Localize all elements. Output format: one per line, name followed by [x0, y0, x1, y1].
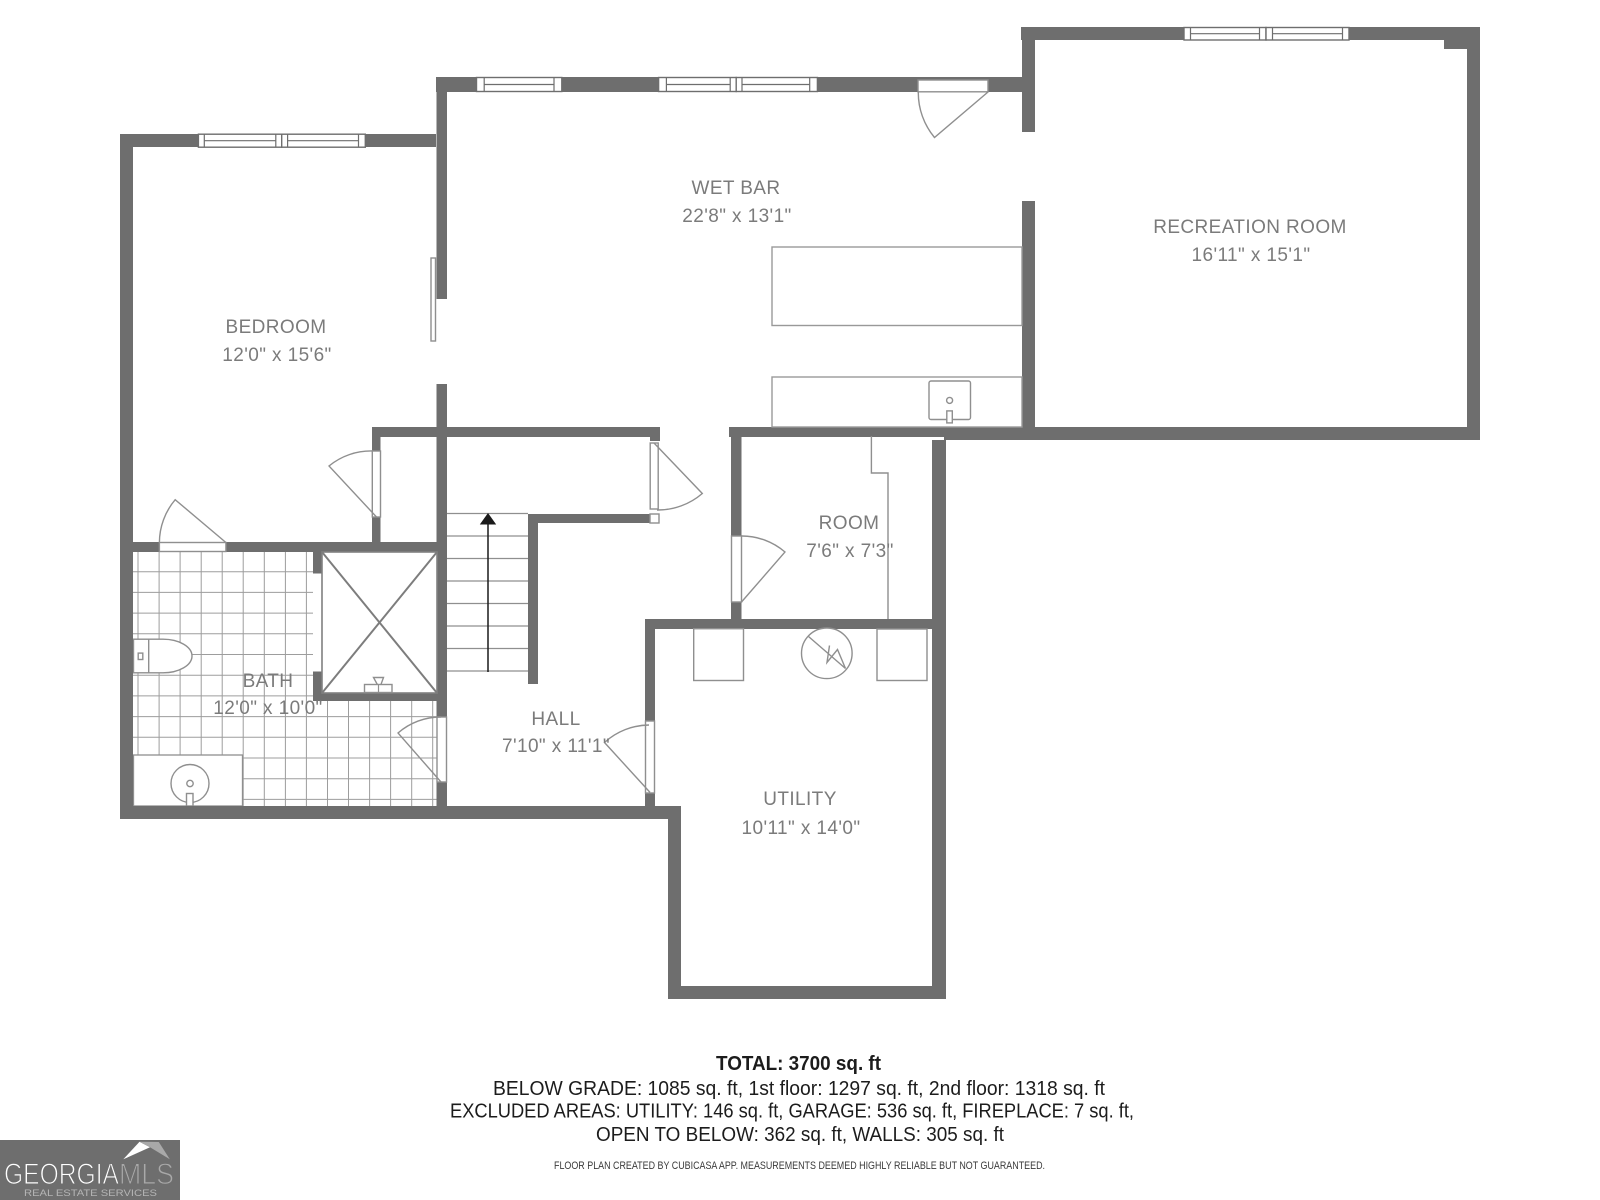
- svg-text:HALL: HALL: [531, 709, 580, 730]
- svg-text:BELOW GRADE: 1085 sq. ft, 1st: BELOW GRADE: 1085 sq. ft, 1st floor: 129…: [493, 1078, 1105, 1100]
- svg-text:TOTAL: 3700 sq. ft: TOTAL: 3700 sq. ft: [716, 1053, 881, 1075]
- svg-text:EXCLUDED AREAS: UTILITY: 146 s: EXCLUDED AREAS: UTILITY: 146 sq. ft, GAR…: [450, 1101, 1134, 1123]
- svg-text:FLOOR PLAN CREATED BY CUBICASA: FLOOR PLAN CREATED BY CUBICASA APP. MEAS…: [554, 1160, 1045, 1172]
- svg-text:16'11" x 15'1": 16'11" x 15'1": [1192, 245, 1311, 266]
- svg-text:12'0" x 10'0": 12'0" x 10'0": [213, 698, 322, 719]
- svg-text:7'6" x 7'3": 7'6" x 7'3": [806, 541, 893, 562]
- svg-text:MLS: MLS: [119, 1158, 174, 1191]
- svg-text:RECREATION ROOM: RECREATION ROOM: [1153, 217, 1347, 238]
- svg-text:WET BAR: WET BAR: [691, 178, 780, 199]
- svg-text:ROOM: ROOM: [819, 513, 880, 534]
- svg-text:OPEN TO BELOW: 362 sq. ft, WAL: OPEN TO BELOW: 362 sq. ft, WALLS: 305 sq…: [596, 1124, 1004, 1146]
- svg-text:12'0" x 15'6": 12'0" x 15'6": [222, 345, 331, 366]
- svg-text:BEDROOM: BEDROOM: [226, 317, 327, 338]
- svg-text:GEORGIA: GEORGIA: [4, 1158, 119, 1191]
- svg-text:REAL ESTATE SERVICES: REAL ESTATE SERVICES: [24, 1188, 157, 1198]
- svg-text:7'10" x 11'1": 7'10" x 11'1": [502, 736, 610, 757]
- svg-text:22'8" x 13'1": 22'8" x 13'1": [682, 206, 791, 227]
- svg-text:BATH: BATH: [243, 671, 294, 692]
- svg-text:10'11" x 14'0": 10'11" x 14'0": [742, 818, 861, 839]
- svg-text:UTILITY: UTILITY: [763, 789, 837, 810]
